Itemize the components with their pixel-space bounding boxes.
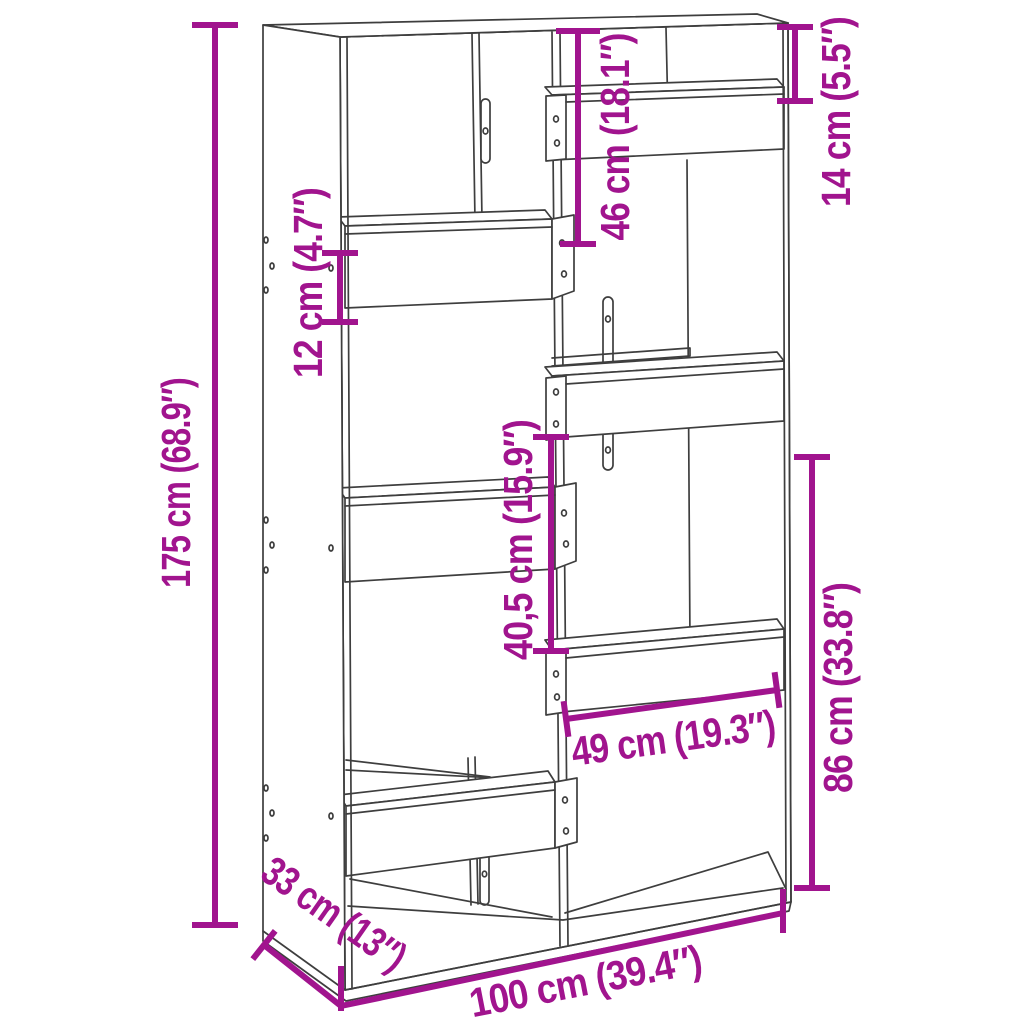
bookcase-dimension-diagram: 175 cm (68.9″) 12 cm (4.7″) 46 cm (18.1″…: [0, 0, 1024, 1024]
dim-bottom-right-label: 86 cm (33.8″): [815, 583, 861, 793]
diagram-canvas: 175 cm (68.9″) 12 cm (4.7″) 46 cm (18.1″…: [0, 0, 1024, 1024]
dim-top-right-gap-label: 14 cm (5.5″): [813, 17, 859, 207]
dim-top-section-label: 46 cm (18.1″): [592, 34, 638, 241]
dim-shelf-box-label: 12 cm (4.7″): [285, 188, 331, 378]
side-panel: [263, 25, 345, 990]
dim-height: 175 cm (68.9″): [153, 25, 238, 925]
dim-middle-section-label: 40,5 cm (15.9″): [495, 420, 541, 660]
dim-height-label: 175 cm (68.9″): [153, 378, 199, 588]
dim-bottom-right-height: 86 cm (33.8″): [794, 457, 861, 888]
shelf-box-left-top: [338, 210, 574, 308]
